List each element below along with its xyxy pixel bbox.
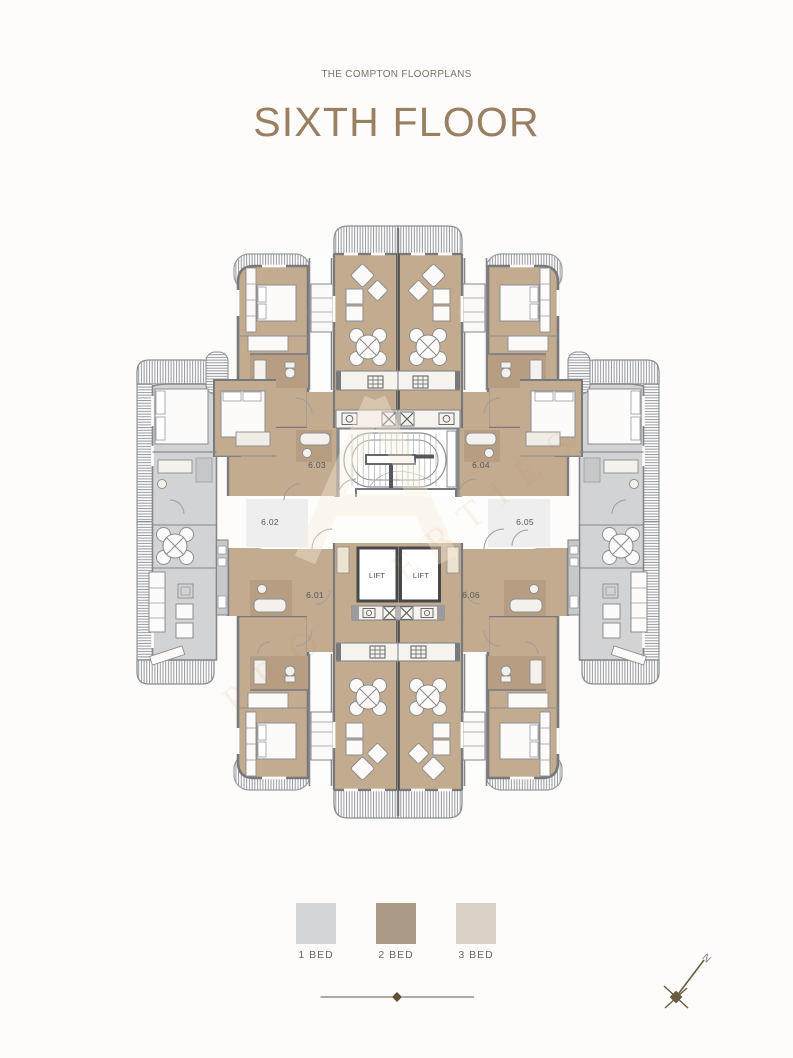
svg-text:LIFT: LIFT <box>369 571 385 580</box>
svg-text:6.06: 6.06 <box>462 590 480 600</box>
svg-text:6.04: 6.04 <box>472 460 490 470</box>
svg-text:6.05: 6.05 <box>516 517 534 527</box>
svg-text:6.03: 6.03 <box>308 460 326 470</box>
svg-text:6.02: 6.02 <box>261 517 279 527</box>
svg-text:6.01: 6.01 <box>306 590 324 600</box>
